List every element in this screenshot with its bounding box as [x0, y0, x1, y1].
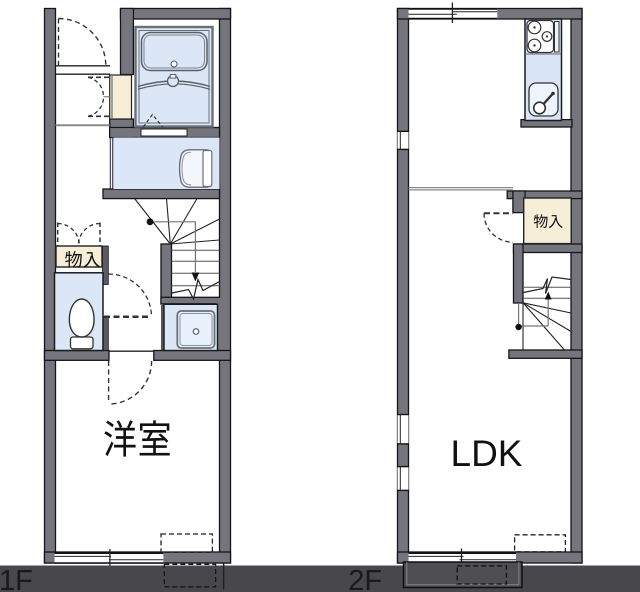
svg-text:2F: 2F [348, 565, 382, 592]
svg-text:LDK: LDK [451, 433, 523, 474]
svg-text:1F: 1F [0, 565, 33, 592]
